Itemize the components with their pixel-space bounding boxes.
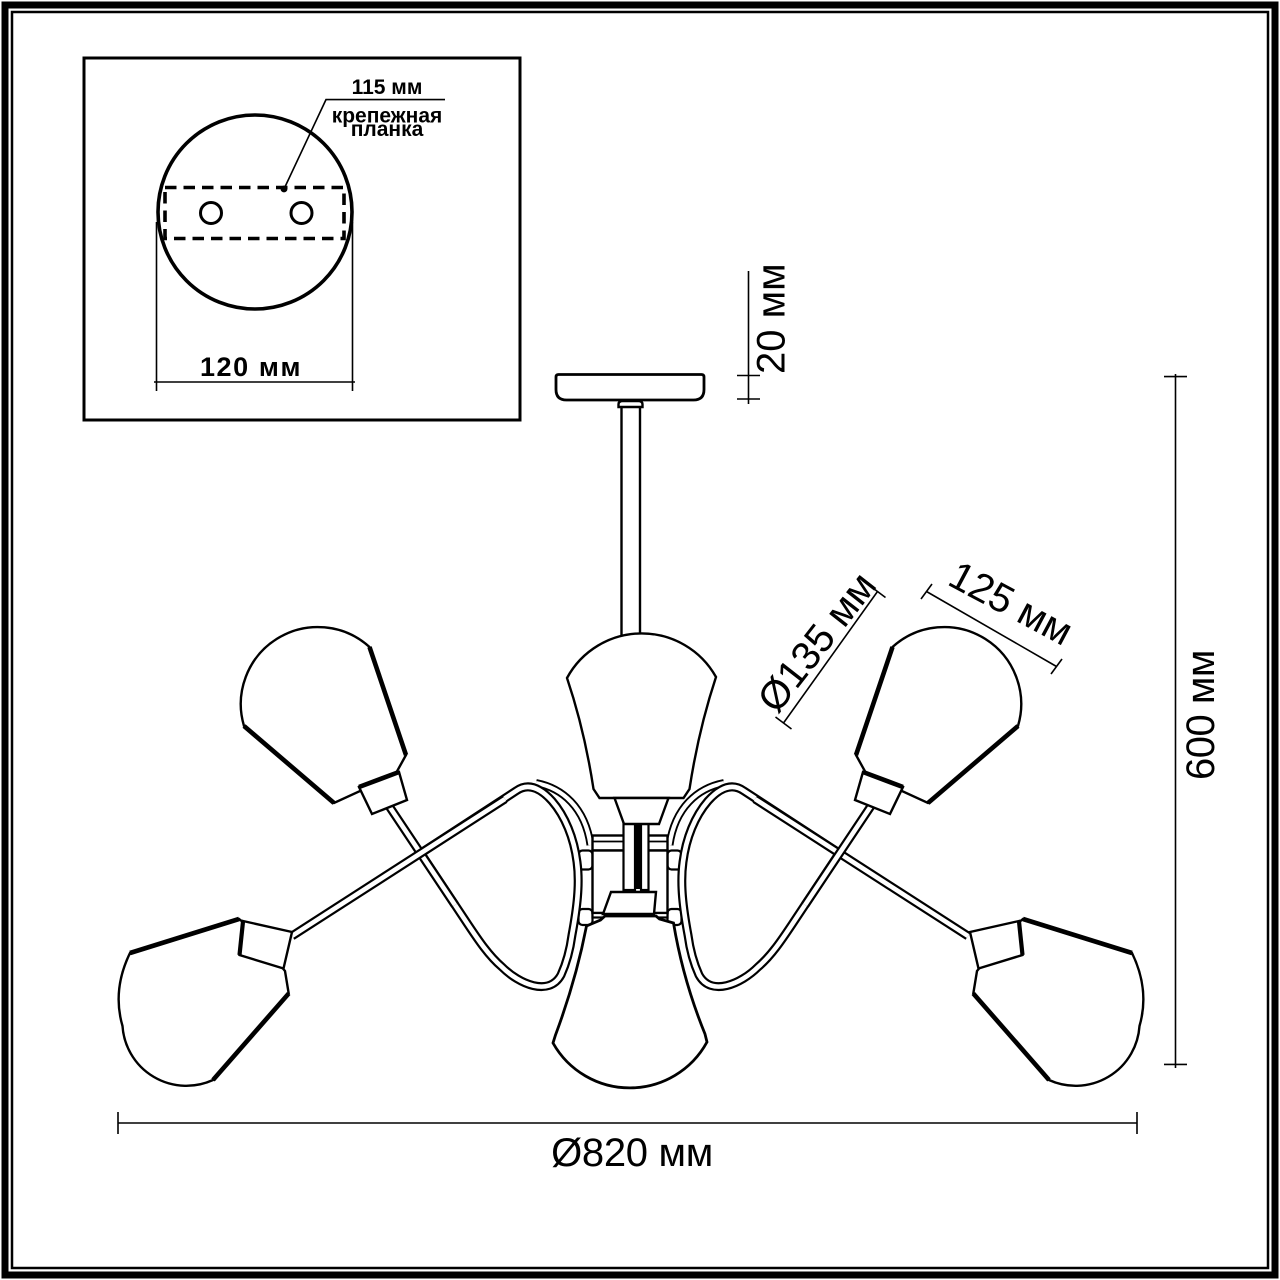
svg-text:Ø820 мм: Ø820 мм [551, 1131, 713, 1175]
svg-text:115 мм: 115 мм [352, 76, 423, 99]
svg-text:600 мм: 600 мм [1179, 650, 1223, 780]
svg-text:20 мм: 20 мм [750, 263, 794, 374]
svg-text:планка: планка [351, 118, 424, 141]
svg-text:120 мм: 120 мм [200, 352, 302, 382]
